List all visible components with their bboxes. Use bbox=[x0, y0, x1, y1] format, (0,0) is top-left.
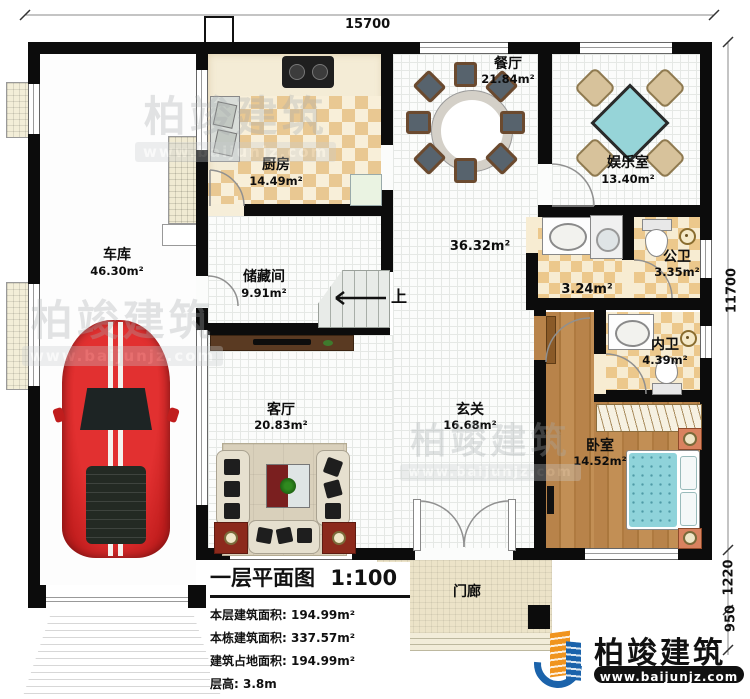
room-label-dining: 餐厅 bbox=[494, 57, 522, 71]
room-label-entertainment: 娱乐室 bbox=[607, 156, 649, 170]
wall-bath-bottom bbox=[526, 298, 712, 310]
opening-publicbath-door bbox=[622, 260, 634, 298]
opening-privatebath-door bbox=[594, 354, 606, 394]
room-area-garage: 46.30m² bbox=[90, 266, 143, 278]
room-area-dining: 21.84m² bbox=[481, 74, 534, 86]
room-area-entertainment: 13.40m² bbox=[601, 174, 654, 186]
info-line: 本栋建筑面积: 337.57m² bbox=[210, 629, 410, 646]
room-label-public-bath: 公卫 bbox=[663, 250, 691, 264]
sofa-left bbox=[216, 450, 250, 526]
left-window-box-top bbox=[6, 82, 30, 138]
bedroom-door-leaf bbox=[546, 316, 556, 364]
window-kitchen-garage bbox=[196, 70, 208, 150]
opening-entry-door bbox=[415, 548, 513, 560]
window-privatebath bbox=[700, 326, 712, 358]
dimension-right-main: 11700 bbox=[725, 261, 740, 321]
window-garage-left-bottom bbox=[28, 284, 40, 386]
room-area-kitchen: 14.49m² bbox=[249, 176, 302, 188]
room-label-private-bath: 内卫 bbox=[651, 338, 679, 352]
room-area-storage: 9.91m² bbox=[241, 288, 286, 300]
plan-title-row: 一层平面图 1:100 bbox=[210, 562, 410, 598]
bed-blanket bbox=[629, 453, 677, 527]
tv-cabinet bbox=[210, 335, 354, 351]
entry-door-leaf-right bbox=[508, 499, 516, 551]
bed bbox=[626, 450, 700, 530]
nightstand bbox=[678, 428, 702, 450]
garage-door-line bbox=[46, 597, 188, 602]
sink-basin bbox=[213, 101, 238, 129]
room-area-hall: 36.32m² bbox=[450, 240, 510, 253]
stove-icon bbox=[282, 56, 334, 88]
window-living-garage bbox=[196, 330, 208, 505]
window-dining bbox=[420, 42, 508, 54]
info-line: 本层建筑面积: 194.99m² bbox=[210, 606, 410, 623]
kitchen-sink-icon bbox=[210, 96, 240, 162]
plant-decor bbox=[323, 340, 333, 346]
washer-door bbox=[596, 228, 620, 252]
sofa-right bbox=[316, 450, 350, 526]
room-area-bedroom: 14.52m² bbox=[573, 456, 626, 468]
stairs-up-label: 上 bbox=[391, 289, 407, 305]
room-area-living: 20.83m² bbox=[254, 420, 307, 432]
car-engine-cover bbox=[86, 466, 146, 544]
room-label-foyer: 玄关 bbox=[456, 403, 484, 417]
room-label-bedroom: 卧室 bbox=[586, 439, 614, 453]
opening-entertainment-door bbox=[538, 164, 552, 205]
brand-url-badge: www.baijunjz.com bbox=[594, 666, 744, 683]
dimension-top: 15700 bbox=[345, 17, 390, 32]
room-area-laundry: 3.24m² bbox=[561, 283, 612, 296]
shower-icon-public bbox=[679, 228, 696, 245]
coffee-table bbox=[266, 464, 310, 508]
room-label-living: 客厅 bbox=[267, 403, 295, 417]
dining-chair bbox=[454, 158, 477, 183]
brand-url: www.baijunjz.com bbox=[600, 670, 739, 684]
garage-door-pier-right bbox=[188, 585, 206, 608]
bed-pillow bbox=[680, 456, 697, 490]
info-line: 建筑占地面积: 194.99m² bbox=[210, 652, 410, 669]
side-step bbox=[162, 224, 198, 246]
privatebath-counter bbox=[608, 314, 654, 350]
dining-chair bbox=[406, 111, 431, 134]
sink-icon bbox=[615, 320, 650, 347]
kitchen-floor-door-area bbox=[208, 170, 238, 204]
burner-icon bbox=[289, 64, 305, 80]
sink-icon bbox=[549, 223, 587, 251]
window-garage-left-top bbox=[28, 84, 40, 134]
entry-door-leaf-left bbox=[413, 499, 421, 551]
side-table-right bbox=[322, 522, 356, 554]
window-publicbath bbox=[700, 240, 712, 278]
burner-icon bbox=[312, 64, 328, 80]
opening-kitchen-hall bbox=[381, 145, 393, 190]
room-label-garage: 车库 bbox=[103, 248, 131, 262]
opening-laundry bbox=[526, 217, 538, 253]
room-label-storage: 储藏间 bbox=[243, 270, 285, 284]
driveway bbox=[22, 610, 222, 699]
plan-scale: 1:100 bbox=[330, 566, 397, 590]
wall-dining-entertainment bbox=[538, 54, 552, 164]
shower-icon-private bbox=[680, 330, 697, 347]
room-area-public-bath: 3.35m² bbox=[654, 267, 699, 279]
window-bedroom bbox=[585, 548, 678, 560]
brand-logo-icon bbox=[534, 630, 590, 688]
room-area-private-bath: 4.39m² bbox=[642, 355, 687, 367]
side-table-left bbox=[214, 522, 248, 554]
opening-bedroom-door bbox=[534, 316, 546, 360]
plan-title: 一层平面图 bbox=[210, 566, 315, 590]
room-label-porch: 门廊 bbox=[453, 585, 481, 599]
opening-garage-storage bbox=[196, 276, 208, 308]
wall-hall-stub bbox=[526, 253, 538, 298]
floor-plan: 车库 46.30m² 厨房 14.49m² 餐厅 21.84m² 娱乐室 13.… bbox=[0, 0, 750, 699]
laundry-counter bbox=[542, 217, 592, 255]
info-line: 层高: 3.8m bbox=[210, 675, 410, 692]
sink-basin bbox=[213, 129, 238, 157]
fridge bbox=[350, 174, 382, 206]
side-platform bbox=[168, 136, 198, 224]
sofa-bottom bbox=[248, 520, 320, 554]
dining-chair bbox=[500, 111, 525, 134]
tv-icon bbox=[253, 339, 311, 345]
nightstand bbox=[678, 528, 702, 549]
brand-logo-block: 柏竣建筑 www.baijunjz.com bbox=[534, 626, 746, 692]
opening-kitchen-door bbox=[208, 204, 244, 216]
plant-icon bbox=[280, 478, 296, 494]
room-area-foyer: 16.68m² bbox=[443, 420, 496, 432]
garage-door-pier-left bbox=[28, 585, 46, 608]
info-block: 一层平面图 1:100 本层建筑面积: 194.99m² 本栋建筑面积: 337… bbox=[210, 562, 410, 692]
bed-pillow bbox=[680, 492, 697, 526]
bedroom-tv-icon bbox=[547, 486, 554, 514]
room-label-kitchen: 厨房 bbox=[262, 158, 290, 172]
car bbox=[62, 320, 170, 558]
window-entertainment bbox=[580, 42, 672, 54]
washing-machine bbox=[590, 215, 623, 259]
wall-bath-top bbox=[538, 205, 712, 217]
dining-chair bbox=[454, 62, 477, 87]
left-window-box-bottom bbox=[6, 282, 30, 390]
car-windshield bbox=[80, 388, 152, 430]
